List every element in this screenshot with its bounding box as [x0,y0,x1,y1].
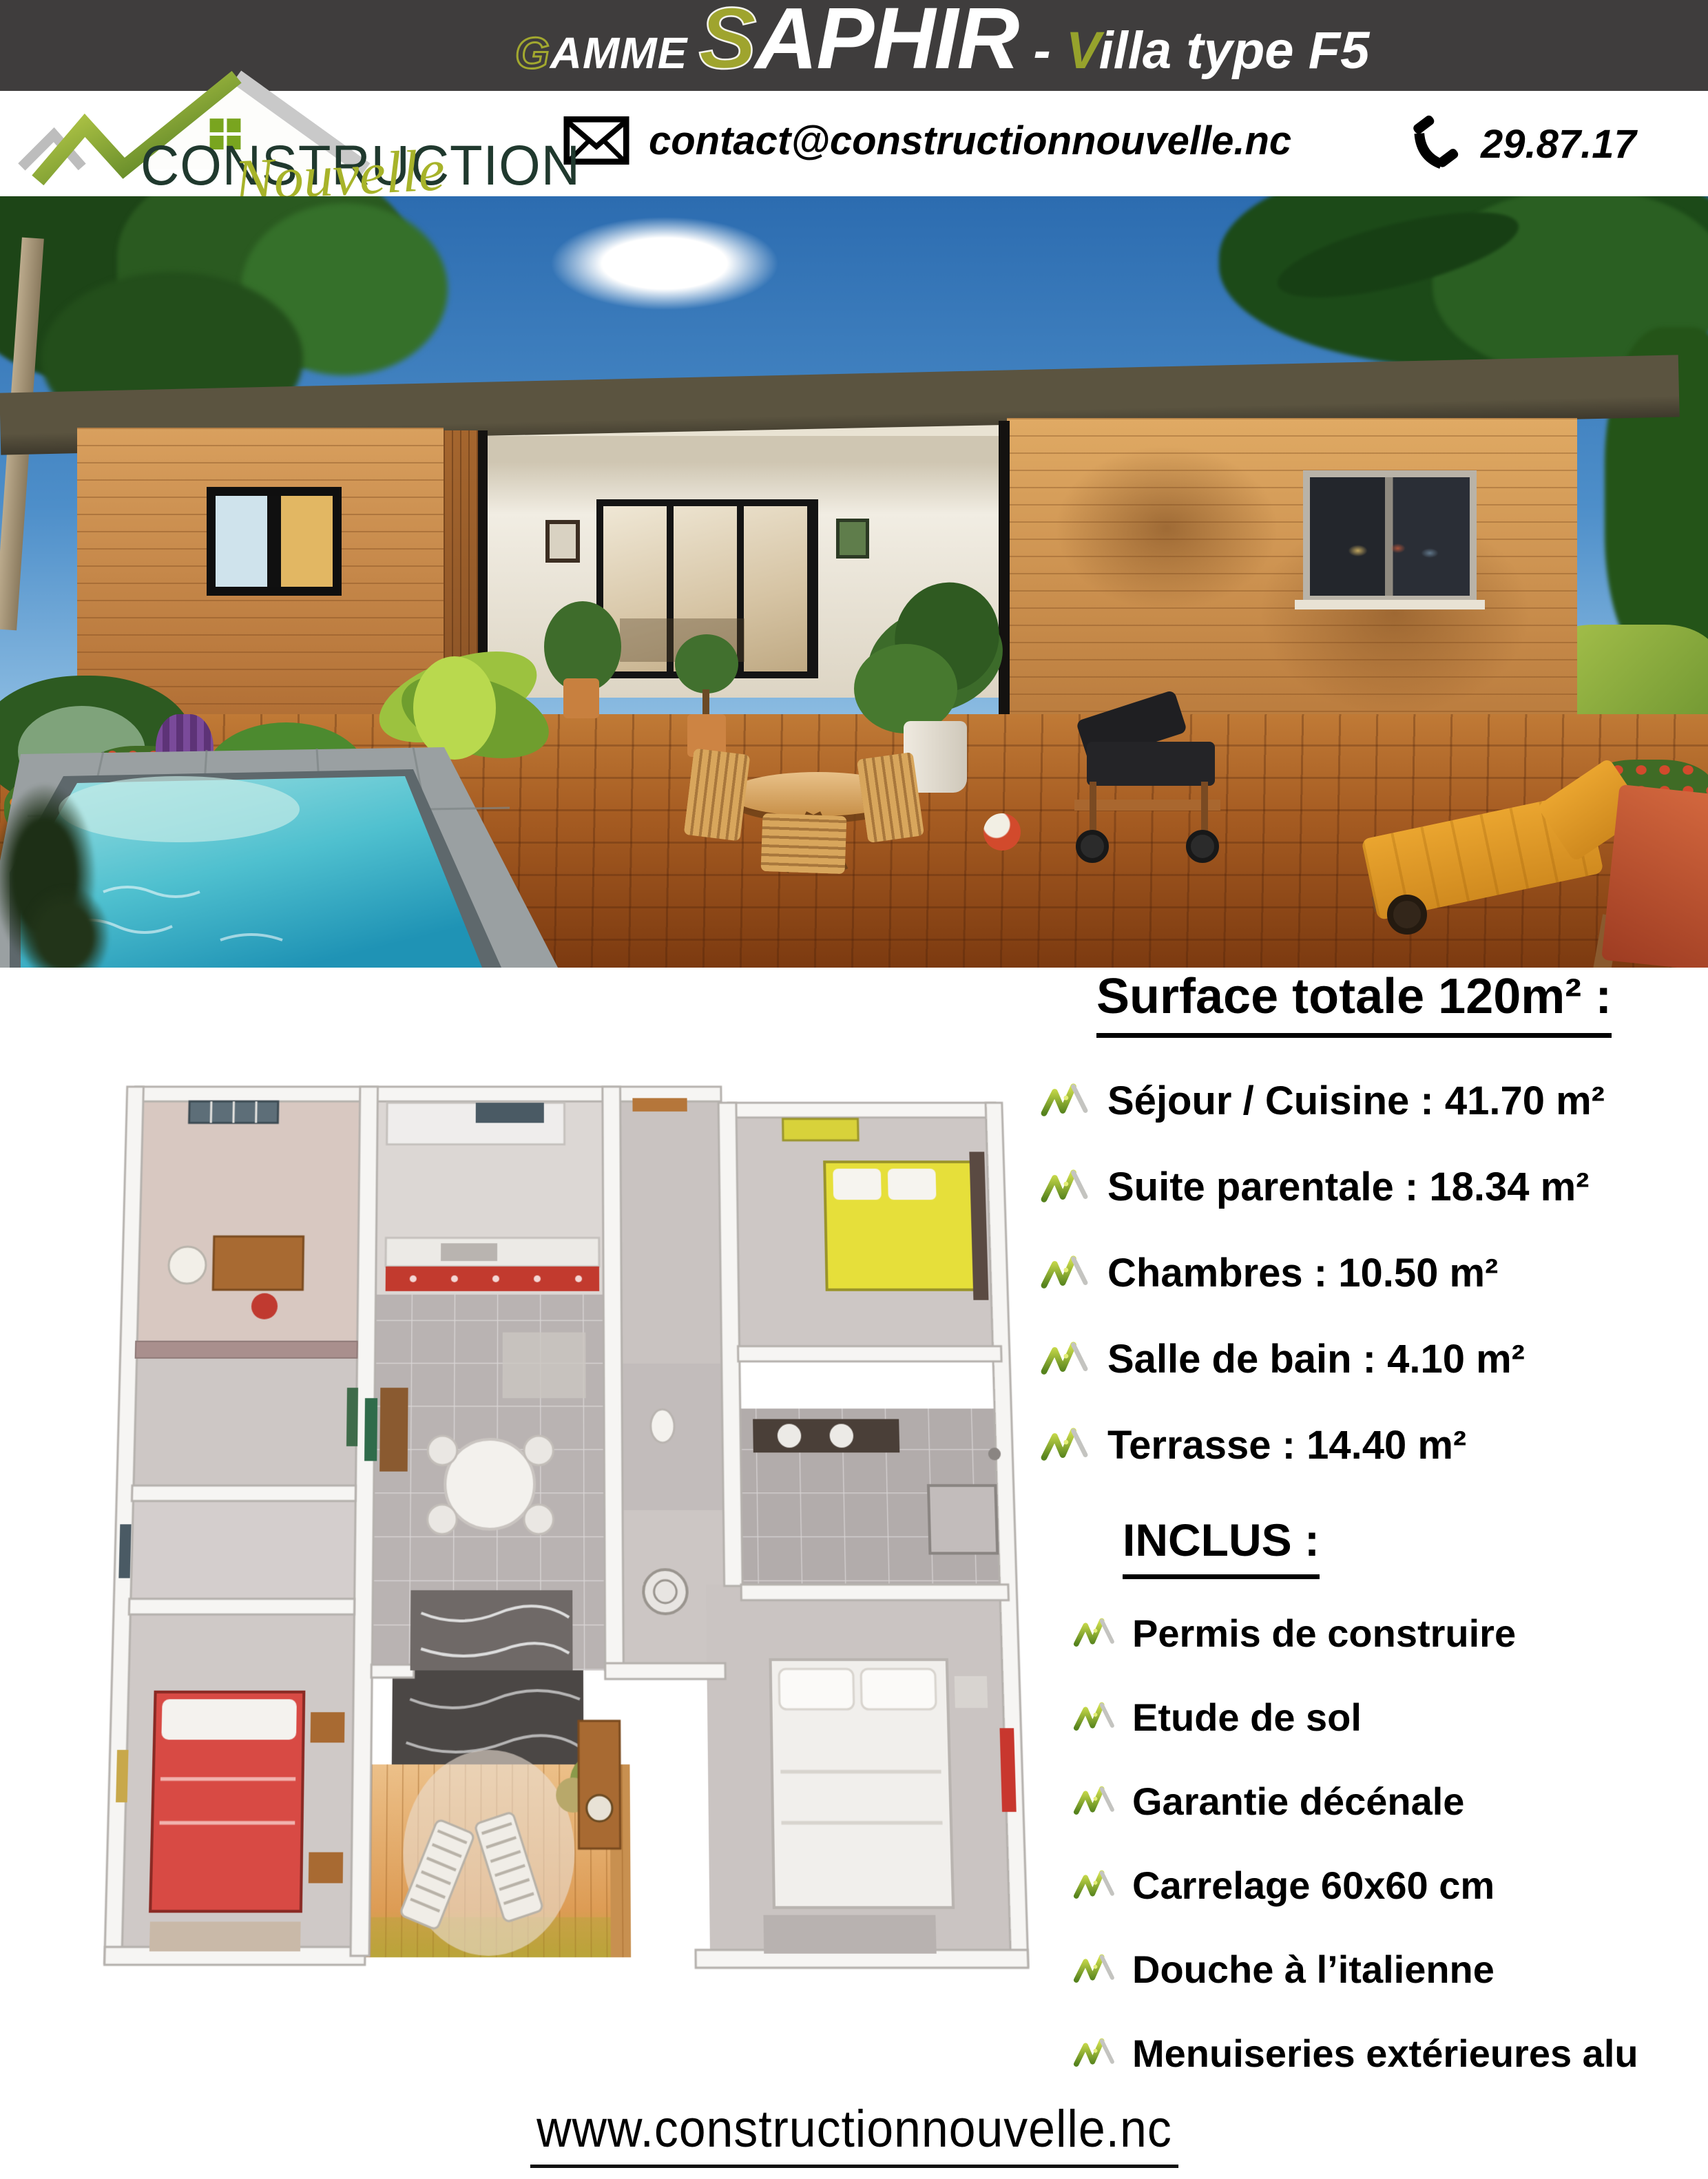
green-check-icon [1072,2035,1116,2072]
email-contact[interactable]: contact@constructionnouvelle.nc [563,116,1291,165]
surface-section: Surface totale 120m² : Séjour / Cuisine … [1028,968,1708,1508]
inclus-section: INCLUS : Permis de construire Etude de s… [1061,1514,1705,2115]
wall-art [836,519,869,559]
green-check-icon [1072,1951,1116,1988]
corner-post [999,421,1010,727]
wardrobe-wall [136,1342,357,1358]
cloud [551,217,778,310]
window-sill [1295,600,1485,609]
floor-plan-image [3,1068,1056,2008]
phone-number: 29.87.17 [1481,121,1636,167]
bbq-wheel [1076,830,1109,863]
window-right [1303,470,1477,603]
green-check-icon [1039,1166,1090,1209]
inclus-title: INCLUS : [1123,1514,1320,1579]
email-text: contact@constructionnouvelle.nc [649,118,1291,164]
inclus-item: Menuiseries extérieures alu [1072,2031,1705,2076]
foreground-plant [21,885,110,968]
gamme-label: GAMME [515,28,687,79]
deck-chair [857,752,924,843]
villa-type-label: Villa type F5 [1066,21,1370,81]
phone-contact[interactable]: 29.87.17 [1405,114,1636,174]
deck-chair [761,813,847,874]
flyer-page: GAMME SAPHIR - Villa type F5 contact@con… [0,0,1708,2179]
wood-wall-right [1007,418,1577,732]
wall-art [545,520,580,563]
deck-chair [684,748,751,841]
website-link[interactable]: www.constructionnouvelle.nc [530,2099,1178,2168]
beach-ball [983,813,1021,851]
topiary-plant [675,634,738,694]
surface-item: Suite parentale : 18.34 m² [1039,1164,1708,1210]
plant-pot [563,678,599,718]
green-check-icon [1072,1783,1116,1820]
green-check-icon [1072,1615,1116,1652]
inclus-item: Carrelage 60x60 cm [1072,1863,1705,1908]
surface-item: Séjour / Cuisine : 41.70 m² [1039,1078,1708,1124]
house-photo [0,196,1708,968]
surface-title: Surface totale 120m² : [1096,968,1612,1038]
lounger-wheel [1387,895,1427,935]
surface-item: Terrasse : 14.40 m² [1039,1422,1708,1468]
potted-plant-leaves [854,644,957,733]
green-check-icon [1039,1338,1090,1381]
red-sun-lounger [1601,784,1708,968]
window-left [207,487,342,596]
inclus-item: Douche à l’italienne [1072,1947,1705,1992]
surface-item: Salle de bain : 4.10 m² [1039,1336,1708,1382]
green-check-icon [1072,1699,1116,1736]
phone-icon [1405,114,1464,174]
bbq-wheel [1186,830,1219,863]
green-check-icon [1072,1867,1116,1904]
range-name: SAPHIR [698,0,1018,88]
company-logo: CONSTRUCTION Nouvelle [6,67,519,202]
inclus-item: Permis de construire [1072,1611,1705,1656]
page-title: GAMME SAPHIR - Villa type F5 [515,0,1369,88]
green-check-icon [1039,1424,1090,1467]
inclus-item: Garantie décénale [1072,1779,1705,1824]
inclus-item: Etude de sol [1072,1695,1705,1740]
green-check-icon [1039,1252,1090,1295]
footer: www.constructionnouvelle.nc [0,2099,1708,2168]
green-check-icon [1039,1080,1090,1123]
title-separator: - [1033,21,1050,81]
surface-item: Chambres : 10.50 m² [1039,1250,1708,1296]
bbq-grill [1087,742,1215,786]
